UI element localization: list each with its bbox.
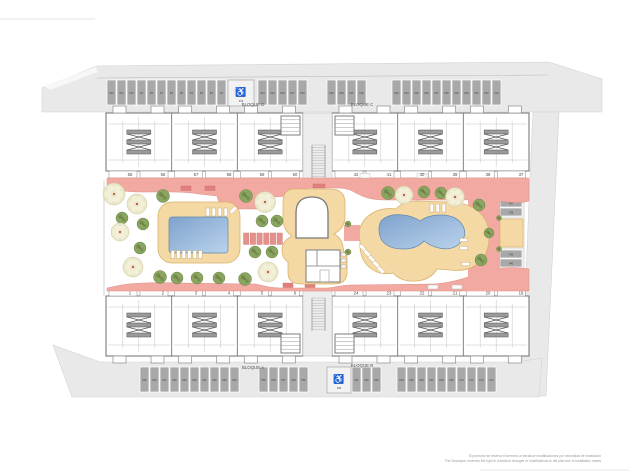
balcony bbox=[217, 106, 230, 113]
tree-trunk bbox=[254, 251, 256, 253]
stair-core bbox=[484, 130, 508, 134]
planter bbox=[277, 233, 282, 245]
unit-number: 58 bbox=[227, 172, 232, 177]
sun-lounger bbox=[182, 251, 186, 259]
tree-foliage bbox=[265, 194, 271, 200]
tree-foliage bbox=[479, 205, 482, 208]
site-plan-svg: P12P11P10P9P8P7P6P5P4P3P2P1P14P15P16P17P… bbox=[0, 0, 629, 476]
stair-core bbox=[419, 313, 443, 317]
tree-foliage bbox=[481, 260, 484, 263]
stair-core bbox=[484, 313, 508, 317]
block-label-a: BLOQUE A bbox=[242, 365, 264, 370]
balcony bbox=[405, 356, 418, 363]
stairwell bbox=[335, 334, 354, 353]
parking-stall-label: P16 bbox=[280, 92, 285, 95]
parking-stall-label: P37 bbox=[509, 203, 514, 206]
stair-core bbox=[353, 130, 377, 134]
tree-foliage bbox=[114, 186, 121, 193]
parking-stall-label: P68 bbox=[439, 379, 444, 382]
parking-stall-label: P27 bbox=[434, 92, 439, 95]
stair-core bbox=[193, 313, 217, 317]
tree-trunk bbox=[480, 259, 482, 261]
unit-number: 21 bbox=[453, 291, 458, 296]
tree-trunk bbox=[387, 192, 389, 194]
unit-number: 20 bbox=[486, 291, 491, 296]
balcony bbox=[113, 356, 126, 363]
tree-foliage bbox=[143, 224, 146, 227]
sun-lounger bbox=[212, 208, 216, 216]
tree-trunk bbox=[142, 223, 144, 225]
tree-foliage bbox=[177, 278, 180, 281]
tree-trunk bbox=[132, 266, 134, 268]
tree-foliage bbox=[219, 278, 222, 281]
tree-foliage bbox=[133, 259, 139, 265]
balcony bbox=[443, 356, 456, 363]
parking-stall-label: P73 bbox=[489, 379, 494, 382]
stair-core bbox=[258, 140, 282, 144]
parking-stall-label: P25 bbox=[414, 92, 419, 95]
parking-stall-label: P71 bbox=[469, 379, 474, 382]
tree-foliage bbox=[424, 192, 427, 195]
tree-trunk bbox=[119, 231, 121, 233]
stair-core bbox=[419, 323, 443, 327]
unit-number: 42 bbox=[354, 172, 359, 177]
parking-stall-label: P33 bbox=[494, 92, 499, 95]
block-label-d: BLOQUE D bbox=[242, 102, 265, 107]
stair-core bbox=[193, 333, 217, 337]
unit-number: 57 bbox=[194, 172, 199, 177]
tree-trunk bbox=[218, 277, 220, 279]
disclaimer-line-es: El promotor se reserva el derecho a intr… bbox=[469, 454, 601, 458]
tree-trunk bbox=[498, 217, 500, 219]
tree-foliage bbox=[450, 190, 456, 196]
parking-stall-label: P30 bbox=[464, 92, 469, 95]
tree-foliage bbox=[272, 252, 275, 255]
tree-foliage bbox=[120, 234, 125, 239]
tree-trunk bbox=[196, 277, 198, 279]
tree-foliage bbox=[122, 218, 125, 221]
stair-core bbox=[193, 150, 217, 154]
stair-core bbox=[193, 130, 217, 134]
parking-stall-label: P66 bbox=[419, 379, 424, 382]
tree-trunk bbox=[261, 220, 263, 222]
parking-stall-label: P55 bbox=[261, 379, 266, 382]
stair-core bbox=[353, 323, 377, 327]
stair-core bbox=[484, 323, 508, 327]
tree-trunk bbox=[454, 196, 456, 198]
wheelchair-icon: ♿ bbox=[333, 373, 344, 384]
parking-stall-label: P51 bbox=[202, 379, 207, 382]
tree-trunk bbox=[347, 223, 349, 225]
balcony bbox=[244, 106, 257, 113]
tree-foliage bbox=[120, 225, 125, 230]
parking-stall-label: P17 bbox=[290, 92, 295, 95]
tree-foliage bbox=[114, 196, 121, 203]
stair-core bbox=[258, 313, 282, 317]
tree-trunk bbox=[403, 194, 405, 196]
balcony bbox=[151, 106, 164, 113]
parking-stall-label: P46 bbox=[152, 379, 157, 382]
stairwell bbox=[281, 116, 300, 135]
block-label-b: BLOQUE B bbox=[351, 363, 374, 368]
balcony bbox=[217, 356, 230, 363]
balcony bbox=[470, 356, 483, 363]
parking-stall-label: P23 bbox=[394, 92, 399, 95]
parking-stall-label: P29 bbox=[454, 92, 459, 95]
tree-trunk bbox=[244, 278, 246, 280]
stair-core bbox=[353, 313, 377, 317]
tree-foliage bbox=[455, 190, 461, 196]
tree-foliage bbox=[137, 206, 143, 212]
stair-core bbox=[353, 333, 377, 337]
tree-foliage bbox=[133, 269, 139, 275]
tree-trunk bbox=[136, 203, 138, 205]
planter bbox=[257, 233, 262, 245]
unit-number: 22 bbox=[420, 291, 425, 296]
balcony bbox=[282, 356, 295, 363]
stair-core bbox=[193, 140, 217, 144]
parking-stall-label: P22 bbox=[359, 92, 364, 95]
bench bbox=[428, 285, 438, 289]
parking-stall-label: P14 bbox=[260, 92, 265, 95]
tree-foliage bbox=[108, 185, 115, 192]
left-pool bbox=[169, 217, 228, 253]
balcony bbox=[179, 106, 192, 113]
planter bbox=[264, 233, 269, 245]
parking-stall-label: P59 bbox=[301, 379, 306, 382]
unit-number: 60 bbox=[293, 172, 298, 177]
parking-stall-label: P63 bbox=[374, 379, 379, 382]
stair-core bbox=[127, 313, 151, 317]
tree-foliage bbox=[160, 277, 163, 280]
tree-foliage bbox=[268, 264, 274, 270]
wheelchair-icon: ♿ bbox=[235, 86, 246, 97]
stair-core bbox=[258, 130, 282, 134]
sun-lounger bbox=[442, 204, 446, 212]
balcony bbox=[508, 356, 521, 363]
tree-foliage bbox=[388, 193, 391, 196]
balcony bbox=[244, 356, 257, 363]
unit-number: 55 bbox=[128, 172, 133, 177]
stair-core bbox=[258, 150, 282, 154]
tree-trunk bbox=[276, 220, 278, 222]
sun-lounger bbox=[193, 251, 197, 259]
tree-foliage bbox=[131, 196, 137, 202]
parking-stall-label: P49 bbox=[182, 379, 187, 382]
sun-lounger bbox=[462, 262, 470, 266]
sun-lounger bbox=[171, 251, 175, 259]
tree-foliage bbox=[137, 196, 143, 202]
parking-stall-label: P62 bbox=[364, 379, 369, 382]
parking-stall-label: P26 bbox=[424, 92, 429, 95]
parking-stall-label: P19 bbox=[329, 92, 334, 95]
parking-stall-label: P31 bbox=[474, 92, 479, 95]
stair-core bbox=[419, 140, 443, 144]
disclaimer-line-en: The Developer reserves the right to intr… bbox=[445, 459, 602, 463]
balcony bbox=[113, 106, 126, 113]
balcony bbox=[405, 106, 418, 113]
block-label-c: BLOQUE C bbox=[351, 102, 374, 107]
unit-number: 23 bbox=[387, 291, 392, 296]
tree-foliage bbox=[277, 221, 280, 224]
unit-number: 39 bbox=[453, 172, 458, 177]
tree-trunk bbox=[267, 271, 269, 273]
sun-lounger bbox=[224, 208, 228, 216]
planter bbox=[270, 233, 275, 245]
sun-lounger bbox=[436, 204, 440, 212]
sun-lounger bbox=[460, 238, 468, 242]
parking-stall-label: P50 bbox=[192, 379, 197, 382]
stair-core bbox=[353, 150, 377, 154]
balcony bbox=[470, 106, 483, 113]
tree-foliage bbox=[197, 278, 200, 281]
stair-core bbox=[353, 140, 377, 144]
pink-planters bbox=[244, 233, 283, 245]
parking-stall-label: P60 bbox=[337, 387, 342, 390]
stair-core bbox=[484, 333, 508, 337]
stair-core bbox=[419, 333, 443, 337]
terrace bbox=[175, 171, 203, 178]
bench bbox=[360, 174, 370, 179]
sun-lounger bbox=[460, 246, 468, 250]
bench bbox=[181, 186, 191, 191]
parking-stall-label: P70 bbox=[459, 379, 464, 382]
parking-stall-label: P57 bbox=[281, 379, 286, 382]
tree-foliage bbox=[455, 199, 461, 205]
sun-lounger bbox=[188, 251, 192, 259]
parking-stall-label: P61 bbox=[354, 379, 359, 382]
disclaimer: El promotor se reserva el derecho a intr… bbox=[445, 454, 629, 470]
tree-foliage bbox=[404, 197, 409, 202]
parking-stall-label: P47 bbox=[162, 379, 167, 382]
tree-foliage bbox=[115, 225, 120, 230]
balcony bbox=[443, 106, 456, 113]
unit-number: 59 bbox=[260, 172, 265, 177]
site-plan-page: P12P11P10P9P8P7P6P5P4P3P2P1P14P15P16P17P… bbox=[0, 0, 629, 476]
unit-number: 56 bbox=[161, 172, 166, 177]
tree-foliage bbox=[399, 188, 404, 193]
stair-core bbox=[127, 140, 151, 144]
seat bbox=[341, 259, 346, 262]
tree-foliage bbox=[265, 204, 271, 210]
stair-core bbox=[419, 150, 443, 154]
tree-foliage bbox=[259, 194, 265, 200]
parking-stall-label: P18 bbox=[300, 92, 305, 95]
tree-trunk bbox=[264, 201, 266, 203]
balcony bbox=[179, 356, 192, 363]
seat bbox=[341, 265, 346, 268]
parking-stall-label: P52 bbox=[212, 379, 217, 382]
tree-foliage bbox=[140, 248, 143, 251]
parking-stall-label: P12 bbox=[109, 92, 114, 95]
parking-stall-label: P45 bbox=[142, 379, 147, 382]
tree-foliage bbox=[262, 264, 268, 270]
tree-foliage bbox=[441, 193, 444, 196]
parking-stall-label: P64 bbox=[399, 379, 404, 382]
tree-trunk bbox=[113, 193, 115, 195]
stair-core bbox=[127, 150, 151, 154]
sun-lounger bbox=[430, 204, 434, 212]
planter bbox=[244, 233, 249, 245]
tree-foliage bbox=[246, 196, 249, 199]
unit-number: 38 bbox=[486, 172, 491, 177]
stair-core bbox=[484, 150, 508, 154]
tree-trunk bbox=[347, 251, 349, 253]
tree-trunk bbox=[245, 195, 247, 197]
parking-stall-label: P65 bbox=[409, 379, 414, 382]
stair-core bbox=[419, 130, 443, 134]
parking-stall-label: P48 bbox=[172, 379, 177, 382]
tree-trunk bbox=[271, 251, 273, 253]
tree-trunk bbox=[478, 204, 480, 206]
parking-stall-label: P72 bbox=[479, 379, 484, 382]
stair-core bbox=[258, 333, 282, 337]
tree-foliage bbox=[127, 259, 133, 265]
parking-stall-label: P40 bbox=[509, 263, 514, 266]
balcony bbox=[377, 356, 390, 363]
unit-number: 19 bbox=[519, 291, 524, 296]
balcony bbox=[151, 356, 164, 363]
tree-trunk bbox=[139, 247, 141, 249]
balcony bbox=[339, 106, 352, 113]
parking-stall-label: P28 bbox=[444, 92, 449, 95]
parking-stall-label: P38 bbox=[509, 212, 514, 215]
parking-stall-label: P21 bbox=[349, 92, 354, 95]
right-entry-pad bbox=[500, 219, 523, 247]
parking-stall-label: P53 bbox=[222, 379, 227, 382]
tree-foliage bbox=[489, 233, 492, 236]
parking-stall-label: P32 bbox=[484, 92, 489, 95]
stair-core bbox=[258, 323, 282, 327]
stair-core bbox=[193, 323, 217, 327]
tree-trunk bbox=[176, 277, 178, 279]
stair-core bbox=[127, 130, 151, 134]
bench bbox=[283, 283, 293, 288]
parking-stall-label: P24 bbox=[404, 92, 409, 95]
sun-lounger bbox=[177, 251, 181, 259]
planter bbox=[250, 233, 255, 245]
unit-number: 41 bbox=[387, 172, 392, 177]
parking-stall-label: P10 bbox=[129, 92, 134, 95]
tree-foliage bbox=[404, 188, 409, 193]
terrace bbox=[109, 171, 137, 178]
balcony bbox=[377, 106, 390, 113]
parking-stall-label: P56 bbox=[271, 379, 276, 382]
parking-stall-label: P39 bbox=[509, 254, 514, 257]
bench bbox=[205, 186, 215, 191]
sun-lounger bbox=[206, 208, 210, 216]
tree-foliage bbox=[245, 279, 248, 282]
unit-number: 40 bbox=[420, 172, 425, 177]
parking-stall-label: P20 bbox=[339, 92, 344, 95]
tree-foliage bbox=[268, 274, 274, 280]
arched-enclosure bbox=[296, 197, 328, 238]
unit-number: 37 bbox=[519, 172, 524, 177]
parking-stall-label: P58 bbox=[291, 379, 296, 382]
parking-stall-label: P67 bbox=[429, 379, 434, 382]
sun-lounger bbox=[199, 251, 203, 259]
tree-foliage bbox=[255, 252, 258, 255]
tree-trunk bbox=[488, 232, 490, 234]
terrace bbox=[335, 171, 363, 178]
balcony bbox=[282, 106, 295, 113]
sun-lounger bbox=[218, 208, 222, 216]
walkway-connector bbox=[344, 225, 360, 241]
tree-trunk bbox=[159, 276, 161, 278]
tree-trunk bbox=[498, 248, 500, 250]
balcony bbox=[339, 356, 352, 363]
tree-trunk bbox=[162, 195, 164, 197]
tree-foliage bbox=[262, 221, 265, 224]
tree-trunk bbox=[440, 192, 442, 194]
passage bbox=[303, 113, 332, 180]
bench bbox=[452, 285, 462, 289]
balcony bbox=[508, 106, 521, 113]
unit-number: 24 bbox=[354, 291, 359, 296]
stairwell bbox=[335, 116, 354, 135]
tree-trunk bbox=[423, 191, 425, 193]
parking-stall-label: P54 bbox=[232, 379, 237, 382]
central-amenity bbox=[282, 184, 347, 284]
parking-stall-label: P15 bbox=[270, 92, 275, 95]
stairwell bbox=[281, 334, 300, 353]
mat bbox=[313, 184, 325, 188]
parking-stall-label: P69 bbox=[449, 379, 454, 382]
stair-core bbox=[127, 323, 151, 327]
stair-core bbox=[127, 333, 151, 337]
parking-stall-label: P11 bbox=[119, 92, 124, 95]
tree-foliage bbox=[163, 196, 166, 199]
tree-trunk bbox=[121, 217, 123, 219]
stair-core bbox=[484, 140, 508, 144]
